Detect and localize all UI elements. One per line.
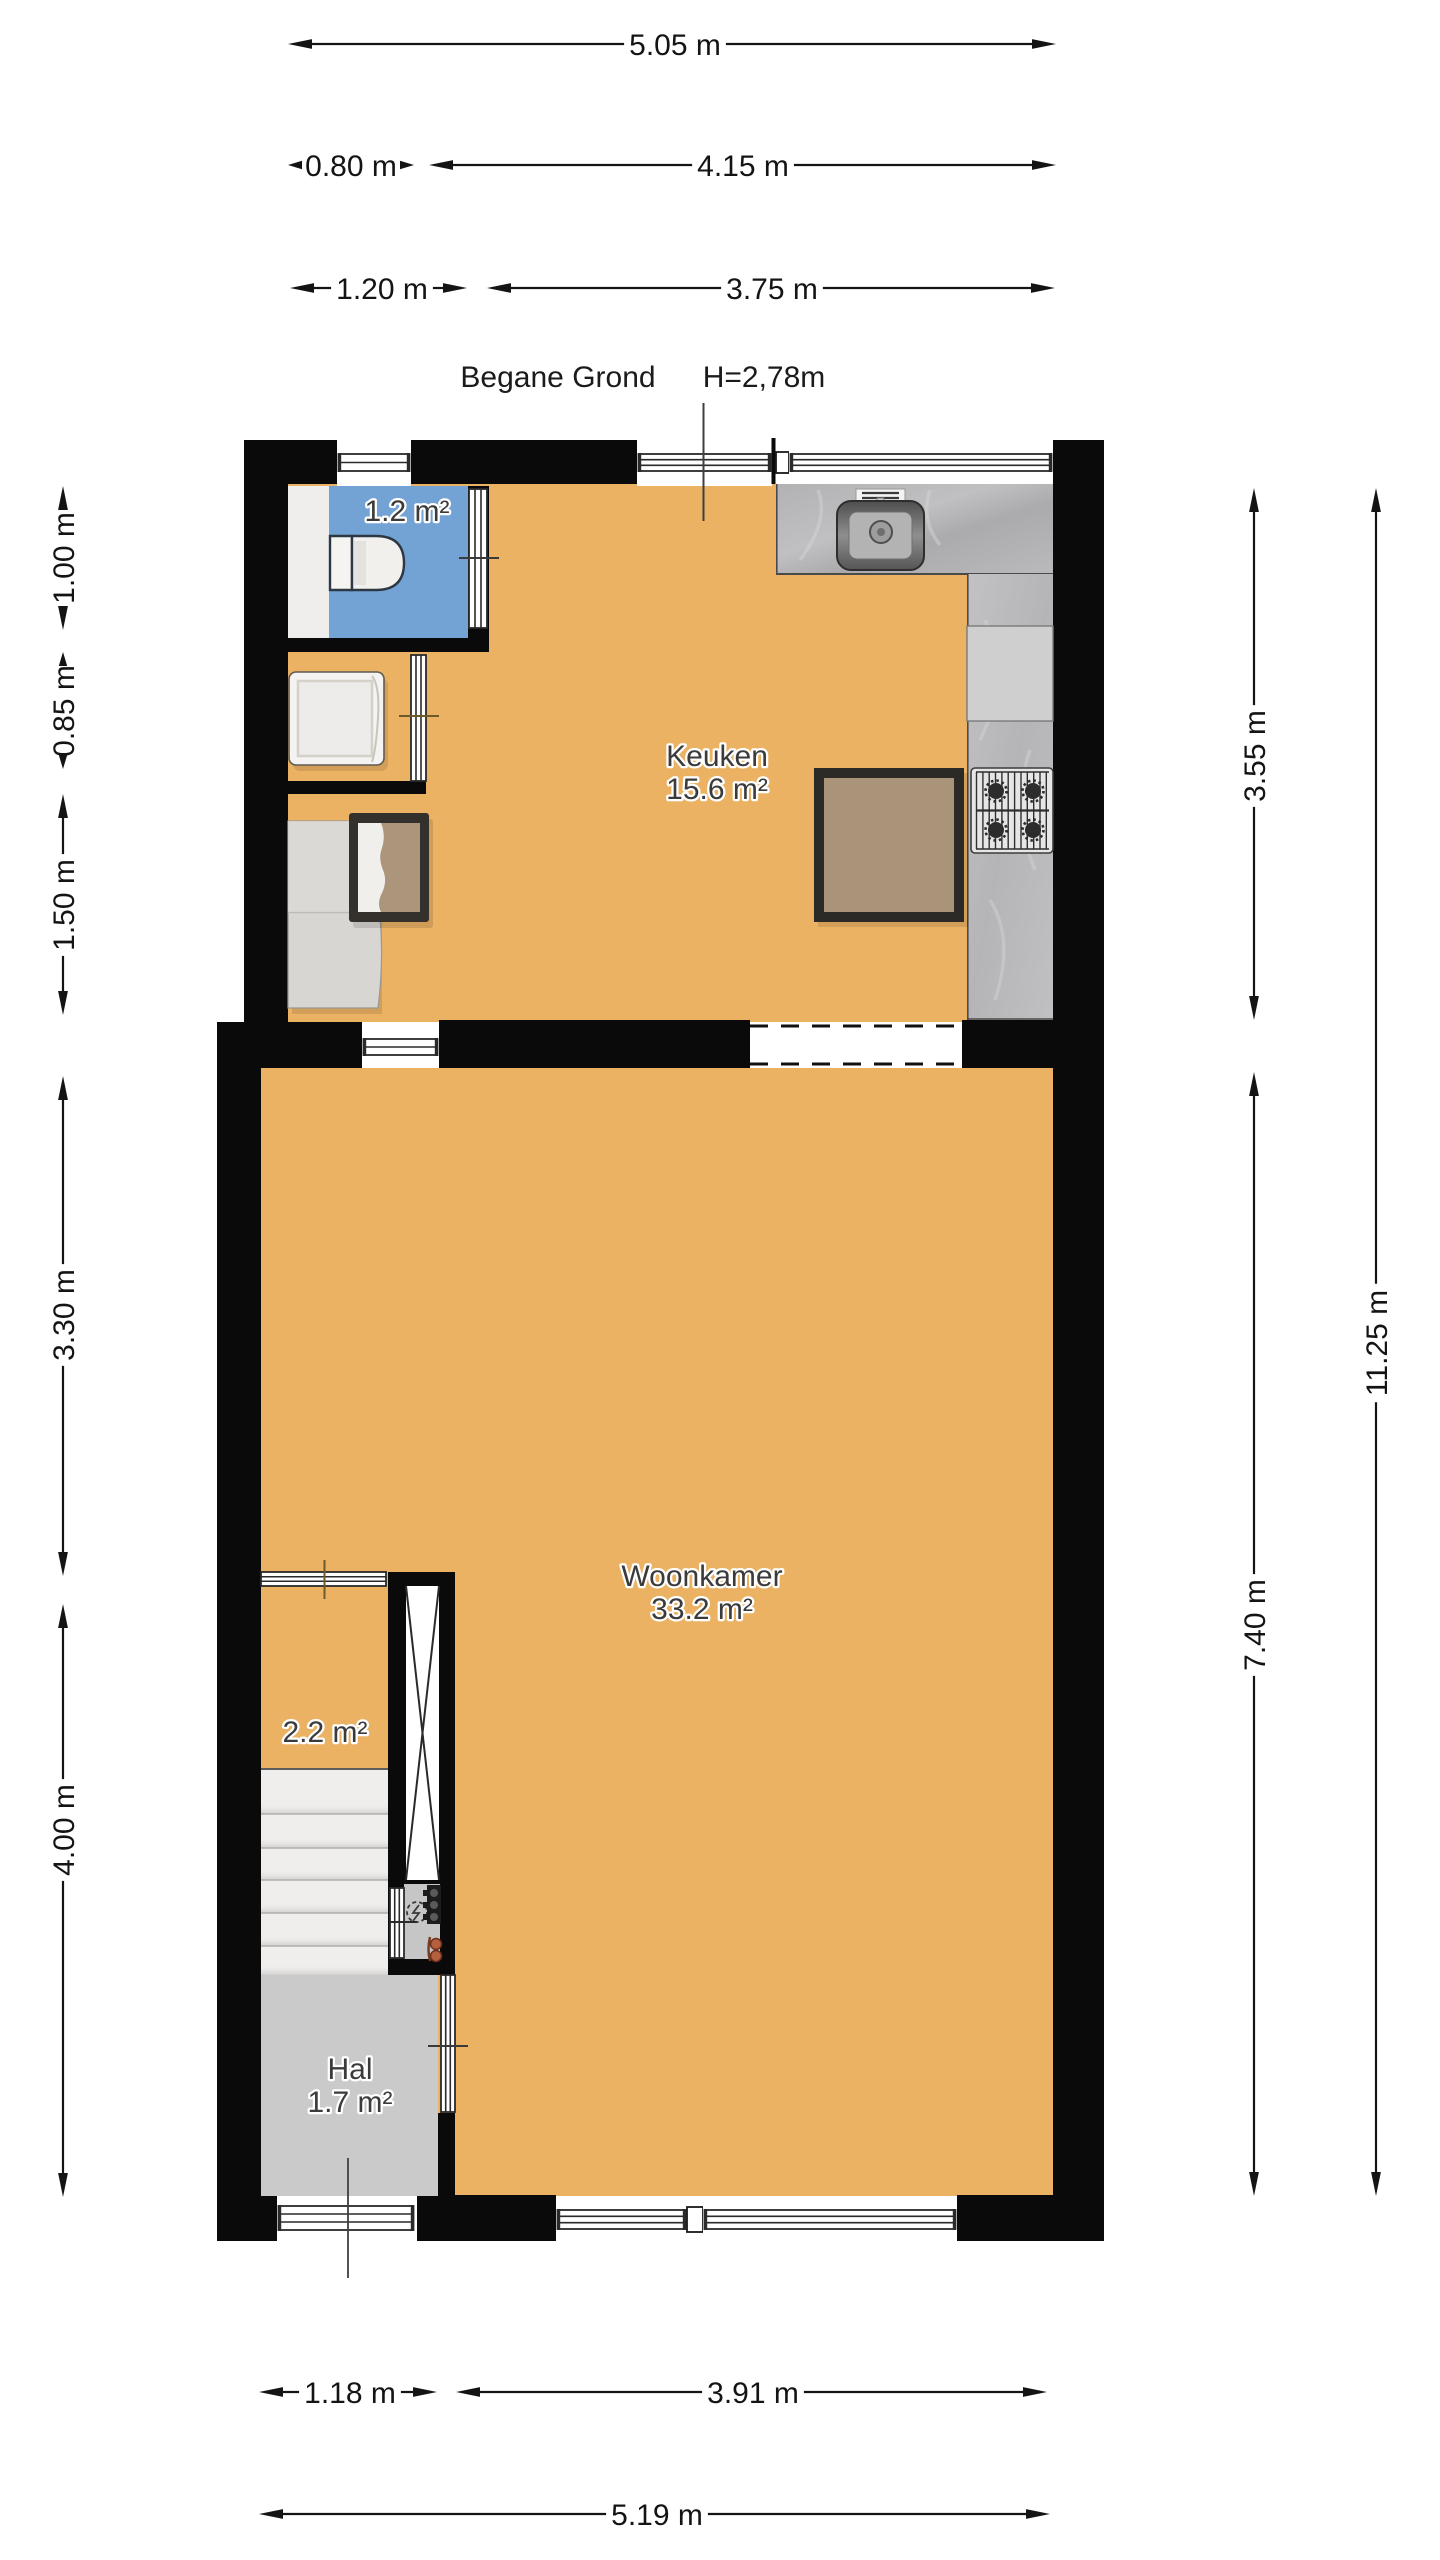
svg-text:H=2,78m: H=2,78m (703, 361, 826, 394)
svg-text:Begane Grond: Begane Grond (460, 361, 655, 394)
svg-text:15.6 m²: 15.6 m² (666, 773, 768, 806)
svg-text:Hal: Hal (327, 2053, 372, 2086)
svg-text:1.00 m: 1.00 m (48, 512, 81, 604)
svg-text:33.2 m²: 33.2 m² (651, 1593, 753, 1626)
svg-text:3.75 m: 3.75 m (726, 273, 818, 306)
svg-text:Keuken: Keuken (666, 740, 768, 773)
svg-text:1.18 m: 1.18 m (304, 2377, 396, 2410)
svg-text:Woonkamer: Woonkamer (621, 1560, 782, 1593)
svg-text:0.85 m: 0.85 m (48, 665, 81, 757)
svg-text:1.50 m: 1.50 m (48, 859, 81, 951)
svg-text:0.80 m: 0.80 m (305, 150, 397, 183)
svg-text:11.25 m: 11.25 m (1361, 1290, 1394, 1396)
svg-text:1.7 m²: 1.7 m² (307, 2086, 392, 2119)
svg-text:3.55 m: 3.55 m (1239, 710, 1272, 802)
svg-text:4.00 m: 4.00 m (48, 1784, 81, 1876)
svg-text:1.20 m: 1.20 m (336, 273, 428, 306)
svg-text:1.2 m²: 1.2 m² (364, 495, 449, 528)
svg-text:2.2 m²: 2.2 m² (282, 1716, 367, 1749)
svg-text:4.15 m: 4.15 m (697, 150, 789, 183)
svg-text:3.30 m: 3.30 m (48, 1269, 81, 1361)
svg-text:3.91 m: 3.91 m (707, 2377, 799, 2410)
svg-text:7.40 m: 7.40 m (1239, 1579, 1272, 1671)
svg-text:5.05 m: 5.05 m (629, 29, 721, 62)
svg-text:5.19 m: 5.19 m (611, 2499, 703, 2532)
